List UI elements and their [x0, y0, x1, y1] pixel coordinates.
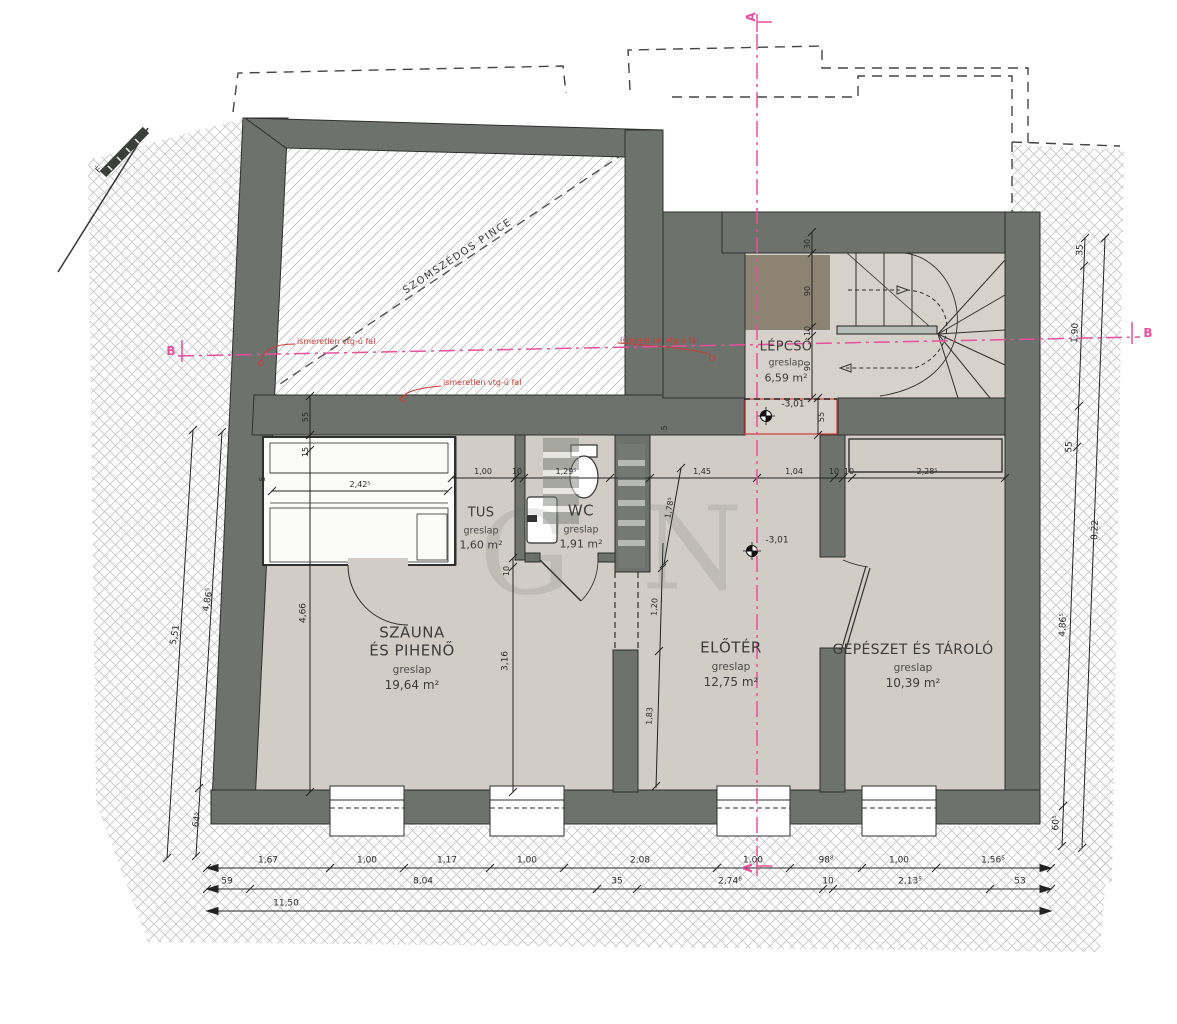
room-szauna-name2: ÉS PIHENŐ	[369, 644, 455, 659]
room-eloter-name: ELŐTÉR	[700, 641, 762, 656]
dim: 55	[302, 412, 310, 422]
room-szauna-finish: greslap	[393, 665, 432, 676]
dim: 55	[818, 412, 826, 422]
dim: 1,90	[1071, 323, 1081, 343]
dim: 1,17	[437, 857, 457, 866]
dim: 1,56⁵	[981, 857, 1005, 866]
dim: 59	[221, 878, 232, 887]
dim-total: 11,50	[273, 900, 299, 909]
dim: 2,28⁵	[916, 468, 937, 476]
room-szauna-area: 19,64 m²	[385, 679, 440, 691]
dim: 5	[259, 476, 267, 481]
dim: 90	[804, 361, 812, 371]
room-wc-finish: greslap	[563, 525, 598, 535]
dim: 60⁵	[1052, 815, 1062, 831]
room-gepeszet-name: GÉPÉSZET ÉS TÁROLÓ	[833, 643, 994, 657]
section-b-left: B	[166, 345, 175, 357]
dim: 10	[512, 468, 522, 476]
level-marker-hall: -3,01	[765, 537, 788, 546]
room-tus-name: TUS	[468, 507, 495, 520]
dim: 2,74⁸	[718, 878, 742, 887]
section-b-right: B	[1143, 327, 1152, 339]
dim: 4,66	[300, 603, 309, 623]
dim: 10	[503, 566, 511, 576]
room-tus-area: 1,60 m²	[459, 540, 502, 551]
annotation-unknown-wall-3: ismeretlen vtg-ú fal	[443, 379, 521, 387]
room-eloter-finish: greslap	[712, 662, 751, 673]
dim: 1,00	[889, 857, 909, 866]
dim: 1,00	[517, 857, 537, 866]
room-szauna-name1: SZAUNA	[379, 626, 445, 641]
dim: 2,42⁵	[349, 481, 370, 489]
watermark-letter-n: N	[642, 493, 743, 608]
room-gepeszet-finish: greslap	[894, 663, 933, 674]
dim: 15	[302, 447, 310, 457]
dim: 98⁸	[818, 857, 833, 866]
dim: 35	[611, 878, 622, 887]
dim: 1,00	[357, 857, 377, 866]
room-gepeszet-area: 10,39 m²	[886, 677, 941, 689]
room-lepcso-area: 6,59 m²	[764, 373, 807, 384]
room-lepcso-name: LÉPCSŐ	[760, 341, 813, 354]
annotation-unknown-wall-2: ismeretlen vtg-ú fal	[620, 337, 698, 345]
dim: 5	[661, 425, 669, 430]
level-marker-stair: -3,01	[781, 401, 804, 410]
dim: 30	[804, 239, 812, 249]
dim: 10	[822, 878, 833, 887]
dim: 2,13⁵	[898, 878, 922, 887]
room-eloter-area: 12,75 m²	[704, 676, 759, 688]
dim: 10	[829, 468, 839, 476]
dim: 1,83	[646, 707, 655, 725]
dim: 8,04	[413, 878, 433, 887]
dim: 1,00	[474, 468, 492, 476]
dim: 1,29⁵	[555, 468, 576, 476]
dim: 1,00	[743, 857, 763, 866]
annotation-unknown-wall-1: ismeretlen vtg-ú fal	[297, 338, 375, 346]
section-a-top: A	[745, 12, 757, 21]
dim: 90	[804, 286, 812, 296]
dim: 1,04	[785, 468, 803, 476]
dim: 2,08	[630, 857, 650, 866]
room-lepcso-finish: greslap	[768, 358, 803, 368]
dim: 55	[1065, 441, 1075, 453]
dim: 10	[844, 468, 854, 476]
dim: 3,16	[502, 651, 511, 671]
dim: 53	[1014, 878, 1025, 887]
dim: 10	[804, 326, 812, 336]
dim: 35	[1076, 244, 1086, 256]
room-tus-finish: greslap	[463, 526, 498, 536]
dim: 1,20	[651, 598, 660, 616]
dim: 4,86⁵	[1059, 613, 1069, 637]
dim: 1,45	[693, 468, 711, 476]
room-wc-area: 1,91 m²	[559, 539, 602, 550]
floor-plan: G N SZAUNA ÉS PIHENŐ greslap 19,64 m² TU…	[0, 0, 1177, 1024]
dim: 1,67	[258, 857, 278, 866]
room-wc-name: WC	[568, 504, 594, 519]
dim: 8,22	[1091, 520, 1101, 540]
neighbor-cellar-zone	[258, 133, 663, 398]
